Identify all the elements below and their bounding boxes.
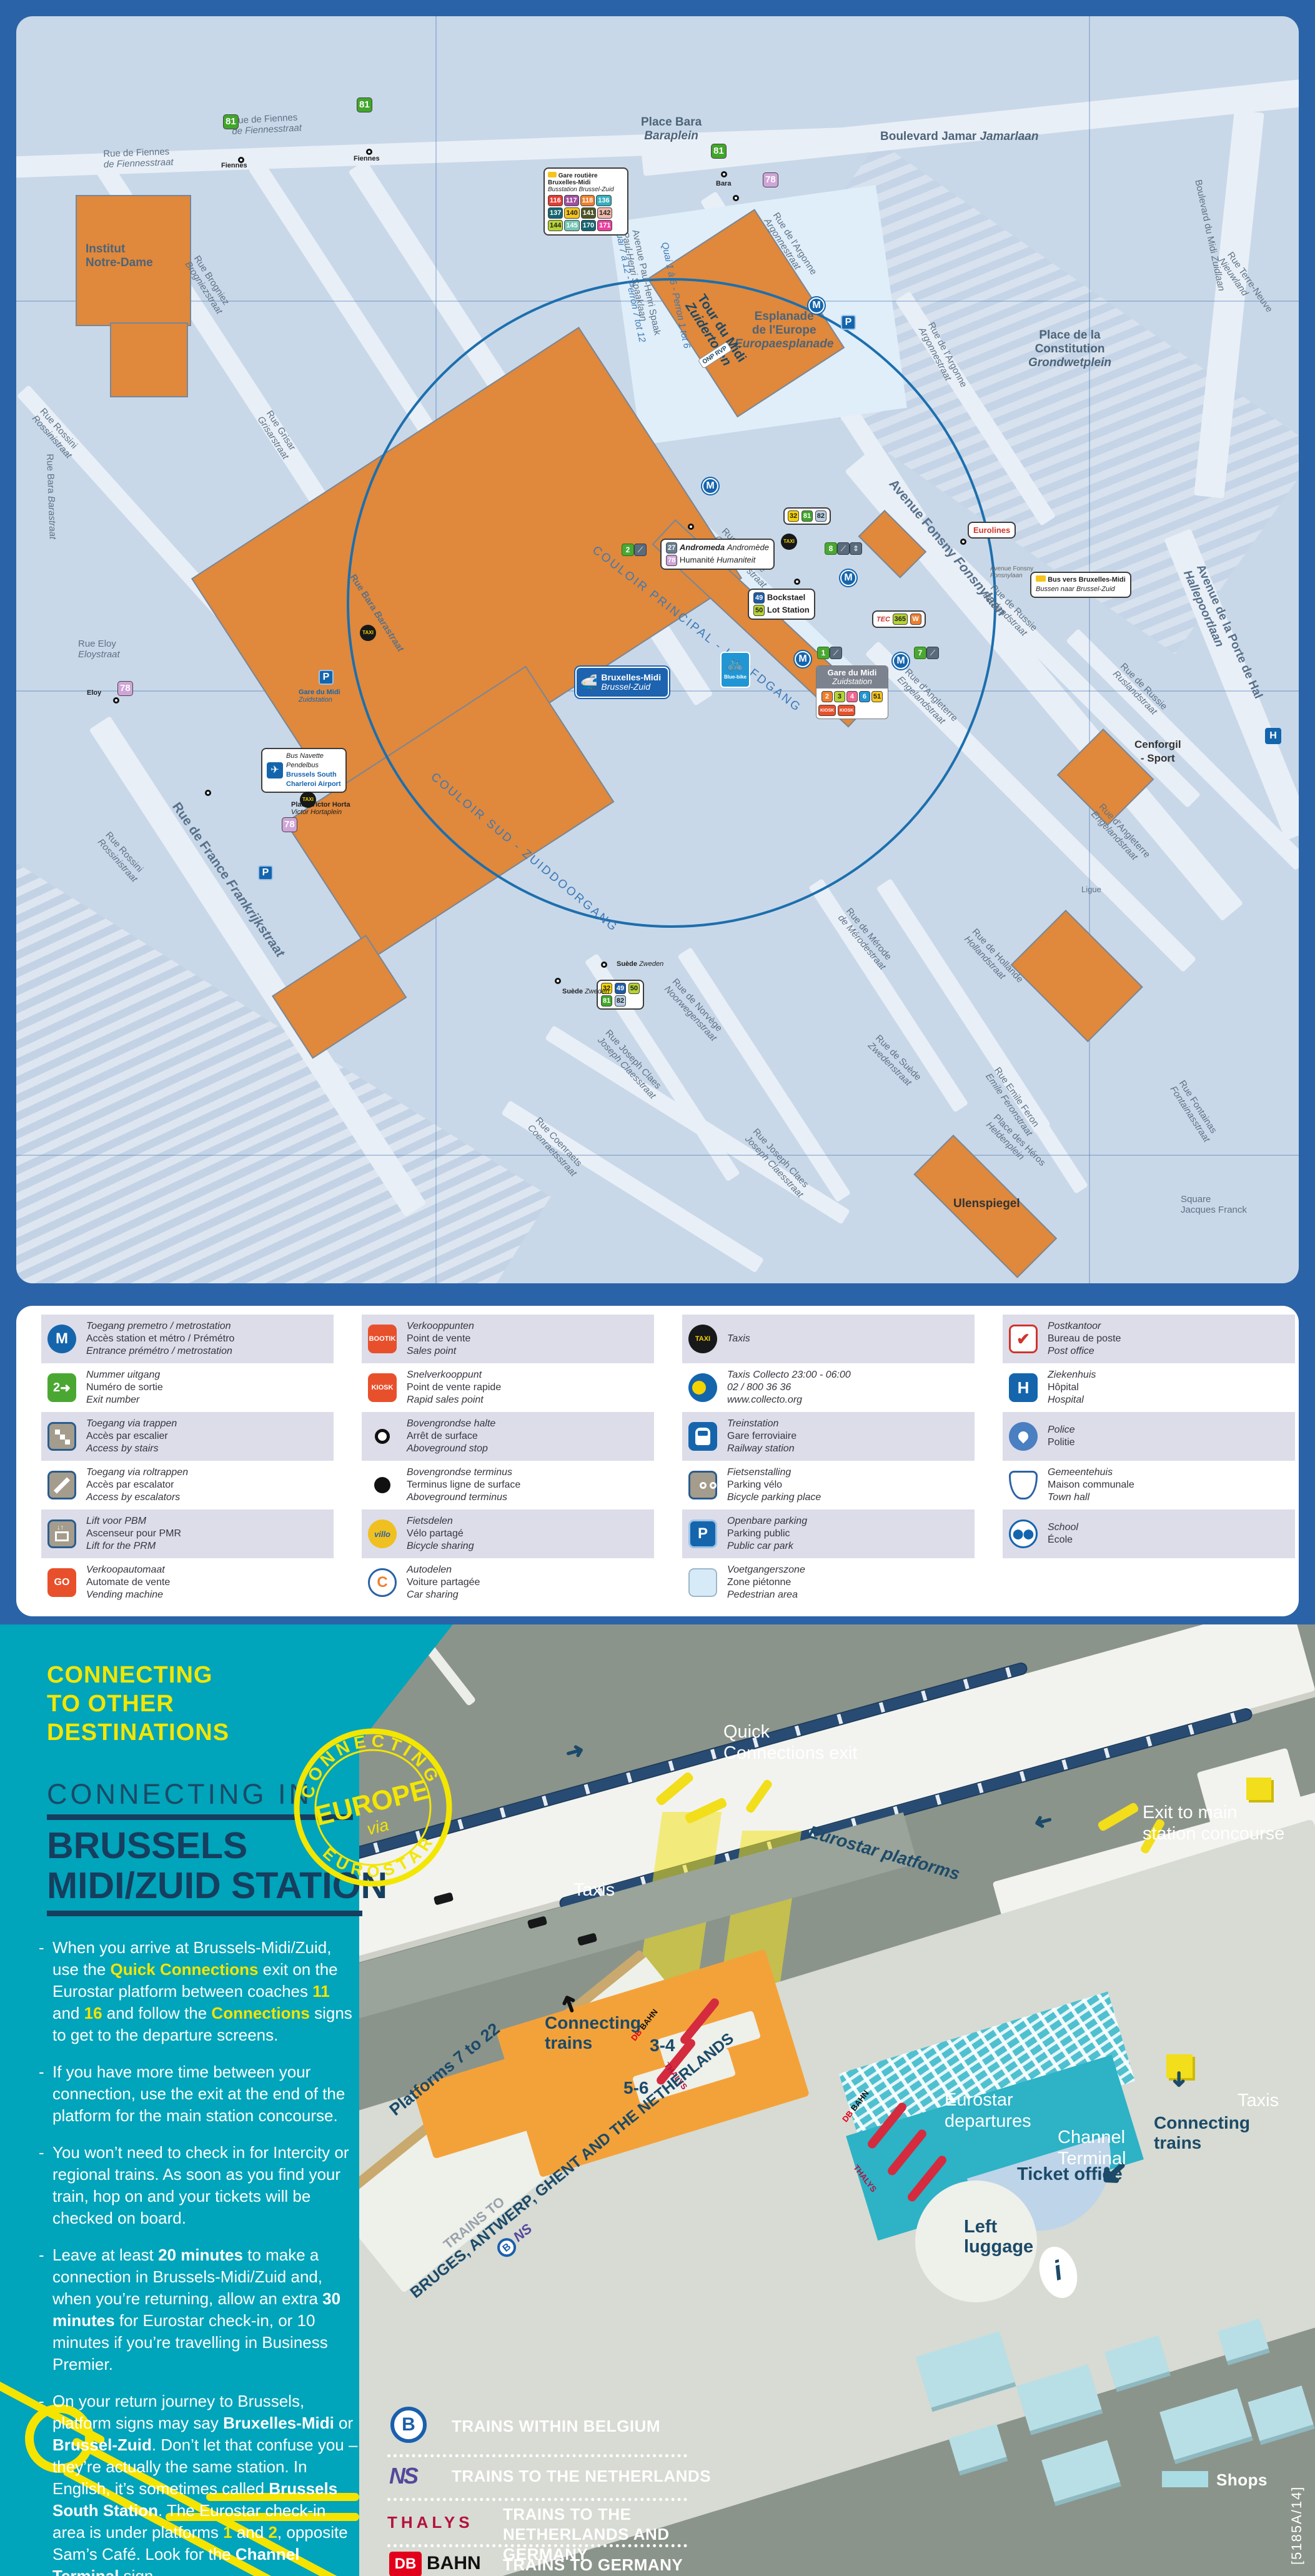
grid-line: [1089, 16, 1090, 1283]
map-legend: MToegang premetro / metrostationAccès st…: [16, 1306, 1299, 1616]
airport-shuttle-callout: ✈ Bus NavettePendelbusBrussels SouthChar…: [261, 748, 347, 793]
legend-row: Taxis Collecto 23:00 - 06:0002 / 800 36 …: [682, 1363, 975, 1412]
stop-dot: [555, 978, 561, 984]
stop-dot: [733, 195, 739, 201]
post-office-icon: ✔: [1009, 1325, 1038, 1353]
street-label: Rue FontainasFontainasstraat: [1168, 1078, 1221, 1144]
shops-swatch: [1162, 2471, 1208, 2487]
platform-arrow: ➜: [1031, 1807, 1056, 1837]
building-institut: [110, 322, 188, 397]
kiosk-icon: KIOSK: [368, 1373, 397, 1402]
bullet: If you have more time between your conne…: [36, 2061, 359, 2127]
stop-dot: [721, 171, 727, 177]
legend-row: Toegang via trappenAccès par escalierAcc…: [41, 1412, 334, 1461]
parking-icon: P: [841, 315, 856, 330]
line-chip: 2: [821, 691, 833, 702]
stop-name: Bara: [716, 180, 731, 187]
bus-chip: 171: [597, 220, 612, 231]
street-band: [808, 878, 968, 1113]
bullet: Leave at least 20 minutes to make a conn…: [36, 2244, 359, 2375]
eurostar-departures-label: Eurostardepartures: [945, 2089, 1031, 2132]
street-label: Rue de Fiennesde Fiennesstraat: [103, 146, 174, 170]
legend-row: VoetgangerszoneZone piétonnePedestrian a…: [682, 1558, 975, 1607]
stop-name: Eloy: [87, 689, 101, 697]
dotted-divider: [387, 2498, 687, 2501]
section-title: BRUSSELS: [47, 1824, 247, 1867]
bullet: When you arrive at Brussels-Midi/Zuid, u…: [36, 1937, 359, 2046]
tram-chips: 32 81 82: [783, 507, 831, 525]
legend-row: 2➜Nummer uitgangNuméro de sortieExit num…: [41, 1363, 334, 1412]
stop-dot: [794, 579, 800, 585]
legend-row: FietsenstallingParking véloBicycle parki…: [682, 1461, 975, 1509]
vending-icon: GO: [47, 1568, 76, 1597]
street-label: Rue RossiniRossinistraat: [96, 830, 147, 884]
bus-chip: 136: [596, 195, 611, 206]
platform-arrow: ➜: [562, 1736, 587, 1766]
route-chip: 78: [763, 172, 778, 187]
bus-chip: 145: [564, 220, 579, 231]
bootik-icon: BOOTIK: [368, 1325, 397, 1353]
legend-row: KIOSKSnelverkooppuntPoint de vente rapid…: [362, 1363, 654, 1412]
pedestrian-zone-icon: [688, 1568, 717, 1597]
stop-dot: [366, 149, 372, 155]
stairs-icon: [47, 1422, 76, 1451]
down-arrow: ➜: [1166, 2071, 1191, 2089]
bus-chip: 170: [581, 220, 596, 231]
fold-edge: [361, 1624, 477, 1706]
connecting-trains-label: Connectingtrains: [1154, 2113, 1250, 2153]
bullet-list: When you arrive at Brussels-Midi/Zuid, u…: [36, 1937, 359, 2576]
exit-chips: 2⟋: [620, 542, 648, 557]
aboveground-stop-icon: [368, 1422, 397, 1451]
bicycle-icon: 🚲: [727, 655, 743, 671]
exit-chips: 1⟋: [817, 647, 842, 659]
shops-label: Shops: [1216, 2470, 1268, 2490]
thalys-logo: THALYS: [387, 2513, 474, 2532]
stop-dot: [601, 962, 607, 968]
legend-row: HZiekenhuisHôpitalHospital: [1003, 1363, 1295, 1412]
shop-block: [1041, 2440, 1120, 2502]
legend-row: MToegang premetro / metrostationAccès st…: [41, 1315, 334, 1363]
building-label: Cenforgil- Sport: [1134, 738, 1181, 765]
connecting-section: ➜ ➜ ➜ ➜: [0, 1624, 1315, 2576]
stop-dot: [113, 697, 119, 704]
reference-code: [5185A/14]: [1289, 2486, 1305, 2565]
svg-text:via: via: [365, 1815, 390, 1838]
stop-name: Suède Zweden: [617, 960, 663, 968]
exit-chips: 7⟋: [914, 647, 939, 659]
leaflet-page: Rue de Fiennesde Fiennesstraat Rue de Fi…: [0, 0, 1315, 2576]
bullet: On your return journey to Brussels, plat…: [36, 2390, 359, 2576]
route-chip: 81: [357, 97, 372, 112]
legend-row: ⬤⬤SchoolÉcole: [1003, 1509, 1295, 1558]
db-logo: DB: [389, 2552, 422, 2576]
building-label: InstitutNotre-Dame: [86, 242, 153, 270]
dotted-divider: [387, 2454, 687, 2457]
school-icon: ⬤⬤: [1009, 1519, 1038, 1548]
collecto-icon: [688, 1373, 717, 1402]
bicycle-parking-icon: [688, 1471, 717, 1499]
shop-block: [1248, 2385, 1313, 2440]
bus-chip: 116: [548, 195, 563, 206]
railway-station-icon: [688, 1422, 717, 1451]
building-label: Ulenspiegel: [953, 1197, 1020, 1211]
stop-name: Place Victor HortaVictor Hortaplein: [291, 801, 350, 816]
legend-row: ↓↑Lift voor PBMAscenseur pour PMRLift fo…: [41, 1509, 334, 1558]
legend-row: villoFietsdelenVélo partagéBicycle shari…: [362, 1509, 654, 1558]
parking-icon: P: [319, 670, 334, 685]
line-chip: 6: [859, 691, 870, 702]
legend-row: GemeentehuisMaison communaleTown hall: [1003, 1461, 1295, 1509]
stop-callout: 27 Andromeda Andromède 78 Humanité Human…: [660, 539, 775, 570]
kiosk-chip: KIOSK: [838, 705, 855, 716]
left-luggage-label: Leftluggage: [964, 2217, 1033, 2257]
bullet: You won’t need to check in for Intercity…: [36, 2142, 359, 2229]
police-icon: [1009, 1422, 1038, 1451]
eurolines-stop: Eurolines: [968, 522, 1016, 539]
section-kicker: CONNECTINGTO OTHERDESTINATIONS: [47, 1661, 229, 1747]
legend-row: PolicePolitie: [1003, 1412, 1295, 1461]
street-label: Rue RossiniRossinistraat: [30, 406, 82, 460]
metro-icon: M: [808, 297, 825, 314]
plane-icon: ✈: [267, 762, 283, 778]
metro-icon: M: [47, 1325, 76, 1353]
train-icon: 🚅: [580, 674, 597, 690]
route-chip: 78: [282, 817, 297, 832]
metro-icon: M: [702, 478, 718, 494]
ticket-office-label: Ticket office: [1017, 2164, 1123, 2184]
villo-icon: villo: [368, 1519, 397, 1548]
ns-logo: NS: [389, 2463, 417, 2489]
legend-text: TRAINS TO GERMANY: [503, 2555, 683, 2575]
street-band: [641, 77, 1299, 176]
exit-chips: 8⟋⇕: [825, 542, 862, 555]
exit-main-label: Exit to mainstation concourse: [1143, 1802, 1284, 1844]
bus-direction-callout: Bus vers Bruxelles-MidiBussen naar Bruss…: [1030, 572, 1131, 598]
stop-dot: [688, 524, 694, 530]
dotted-divider: [387, 2544, 687, 2547]
bus-chip: 144: [548, 220, 563, 231]
legend-row: CAutodelenVoiture partagéeCar sharing: [362, 1558, 654, 1607]
place-label: Place BaraBaraplein: [641, 116, 702, 143]
line-chip: 4: [846, 691, 858, 702]
legend-row: TreinstationGare ferroviaireRailway stat…: [682, 1412, 975, 1461]
lift-icon: ↓↑: [47, 1519, 76, 1548]
grid-line: [16, 1155, 1299, 1156]
bus-chip: 118: [580, 195, 595, 206]
bus-station-box: Gare routière Bruxelles-MidiBusstation B…: [543, 167, 628, 236]
line-chip: 3: [834, 691, 845, 702]
taxis-label: Taxis: [1238, 2090, 1279, 2111]
legend-row: ✔PostkantoorBureau de postePost office: [1003, 1315, 1295, 1363]
street-label: Rue EloyEloystraat: [78, 639, 120, 660]
parking-icon: P: [258, 865, 273, 880]
parking-name: Gare du MidiZuidstation: [299, 689, 340, 704]
building-ligue: [1011, 910, 1143, 1042]
taxi-icon: TAXI: [688, 1325, 717, 1353]
legend-text: TRAINS WITHIN BELGIUM: [452, 2417, 660, 2436]
place-label: Esplanadede l'EuropeEuropaesplanade: [735, 310, 833, 351]
taxi-icon: TAXI: [781, 534, 797, 550]
legend-row: BOOTIKVerkooppuntenPoint de venteSales p…: [362, 1315, 654, 1363]
bus-chip: 141: [581, 207, 596, 219]
taxis-label: Taxis: [573, 1879, 615, 1901]
legend-text: TRAINS TO THE NETHERLANDS: [452, 2467, 711, 2486]
legend-row: TAXITaxis: [682, 1315, 975, 1363]
town-hall-icon: [1009, 1471, 1038, 1499]
bus-icon: [548, 172, 557, 177]
street-label: Rue Bara Barastraat: [44, 454, 58, 539]
hospital-icon: H: [1265, 728, 1281, 744]
exit-number-icon: 2➜: [47, 1373, 76, 1402]
bus-chip: 140: [564, 207, 579, 219]
cambio-icon: C: [368, 1568, 397, 1597]
channel-terminal-label: ChannelTerminal: [1058, 2127, 1126, 2169]
street-label: Rue de Fiennesde Fiennesstraat: [231, 112, 302, 137]
bus-chip: 137: [548, 207, 563, 219]
stop-dot: [238, 157, 244, 163]
route-chip: 81: [223, 114, 239, 129]
legend-row: Toegang via roltrappenAccès par escalato…: [41, 1461, 334, 1509]
place-label: Place de laConstitutionGrondwetplein: [1028, 329, 1111, 370]
taxi-icon: TAXI: [300, 792, 316, 808]
bahn-logo: BAHN: [427, 2553, 481, 2574]
stop-name: Suède Zweden: [562, 988, 609, 995]
legend-row: POpenbare parkingParking publicPublic ca…: [682, 1509, 975, 1558]
street-label: Rue GrisarGrisarstraat: [255, 409, 299, 461]
sncb-logo: B: [390, 2407, 427, 2443]
stop-name: Fiennes: [354, 155, 380, 162]
stop-name: Avenue FonsnyFonsnylaan: [990, 565, 1033, 579]
line-chip: 51: [871, 691, 883, 702]
section-heading: CONNECTING IN: [47, 1778, 312, 1811]
station-diagram: ➜ ➜ ➜ ➜: [359, 1624, 1315, 2576]
place-label: SquareJacques Franck: [1181, 1194, 1247, 1215]
metro-icon: M: [840, 570, 856, 586]
bus-icon: [1036, 575, 1046, 582]
aboveground-terminus-icon: [368, 1471, 397, 1499]
escalator-icon: [47, 1471, 76, 1499]
kiosk-chip: KIOSK: [818, 705, 836, 716]
route-chip: 78: [117, 681, 133, 696]
building-label: Ligue: [1081, 884, 1101, 895]
exit-cube: [1246, 1778, 1271, 1800]
legend-row: Bovengrondse halteArrêt de surfaceAboveg…: [362, 1412, 654, 1461]
bus-chip: 117: [564, 195, 579, 206]
station-sign: 🚅 Bruxelles-MidiBrussel-Zuid: [575, 667, 669, 698]
route-chip: 81: [711, 144, 727, 159]
metro-icon: M: [795, 651, 811, 667]
connecting-trains-label: Connectingtrains: [545, 2013, 641, 2053]
stop-dot: [205, 790, 211, 796]
legend-row: Bovengrondse terminusTerminus ligne de s…: [362, 1461, 654, 1509]
street-map: Rue de Fiennesde Fiennesstraat Rue de Fi…: [16, 16, 1299, 1283]
public-parking-icon: P: [688, 1519, 717, 1548]
premetro-box: Gare du MidiZuidstation 2 3 4 6 51 KIOSK…: [816, 665, 888, 719]
bus-chip: 142: [597, 207, 612, 219]
taxi-icon: TAXI: [360, 625, 376, 641]
street-label: Boulevard Jamar Jamarlaan: [880, 130, 1038, 144]
stop-dot: [960, 539, 966, 545]
legend-row: GOVerkoopautomaatAutomate de venteVendin…: [41, 1558, 334, 1607]
blue-bike-box: 🚲Blue-bike: [720, 652, 750, 688]
shop-block: [1159, 2389, 1252, 2460]
tec-stop: TEC 365 W: [872, 610, 926, 628]
hospital-icon: H: [1009, 1373, 1038, 1402]
metro-icon: M: [893, 653, 909, 669]
highlight-mark: [1097, 1802, 1140, 1833]
quick-connections-label: QuickConnections exit: [723, 1721, 857, 1764]
stop-name: Fiennes: [221, 162, 247, 169]
stop-callout: 49 Bockstael 50 Lot Station: [748, 589, 815, 620]
